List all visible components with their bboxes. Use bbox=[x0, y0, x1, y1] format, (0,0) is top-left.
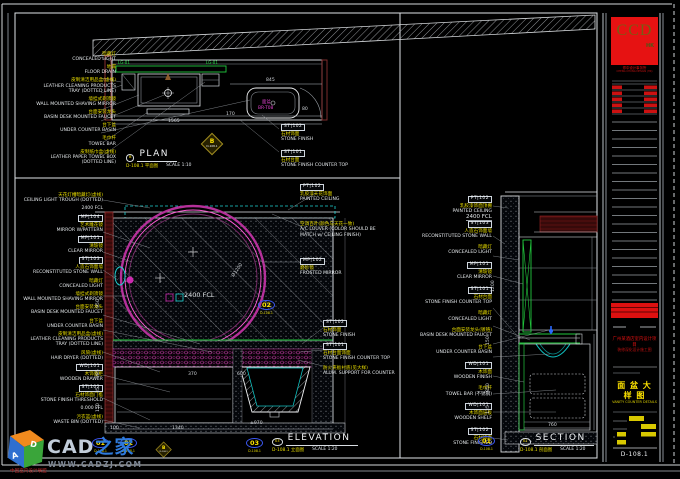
marker-ref: D-108.1 bbox=[480, 447, 493, 451]
label-item: ST|101 石材台面 STONE FINISH COUNTER TOP bbox=[281, 150, 391, 168]
label-item: 0.000 FFL bbox=[8, 406, 103, 411]
dim-80: 80 bbox=[302, 107, 308, 112]
view-title-text: ELEVATION bbox=[286, 434, 359, 446]
label-item: 皮制清洁用品盒(虚线) LEATHER CLEANING PRODUCTS TR… bbox=[8, 332, 103, 347]
material-code: PT|102 bbox=[300, 184, 324, 191]
material-code: MP|101 bbox=[78, 236, 103, 243]
label-item: 2400 FCL bbox=[8, 206, 103, 211]
elevation-title: 03 ELEVATION D-108.1 立面图 SCALE 1:20 bbox=[272, 434, 358, 453]
label-en: CLEAR MIRROR bbox=[68, 249, 103, 254]
dim-600: 600 bbox=[237, 372, 246, 377]
label-en: MIRROR W/PATTERN bbox=[57, 228, 103, 233]
label-item: ST|103 人造石饰面墙 RECONSTITUTED STONE WALL bbox=[8, 257, 103, 275]
label-en: CONCEALED LIGHT bbox=[448, 250, 492, 255]
section-fcl-label: 2400 FCL bbox=[466, 214, 492, 221]
section-title: 01 SECTION D-108.1 剖面图 SCALE 1:20 bbox=[520, 434, 594, 453]
material-code: ST|101 bbox=[468, 287, 492, 294]
watermark-brand-home: 之家 bbox=[94, 436, 134, 458]
label-en2: TRAY (DOTTED LINE) bbox=[69, 89, 116, 94]
label-item: MP|102 磨砂镜 FROSTED MIRROR bbox=[300, 258, 400, 276]
label-item: 暗藏灯 CONCEALED LIGHT bbox=[404, 245, 492, 255]
label-en: PAINTED CEILING bbox=[300, 197, 340, 202]
label-item: ST|101 石材台面 STONE FINISH COUNTER TOP bbox=[404, 287, 492, 305]
dim-1200: 1200 bbox=[491, 280, 496, 292]
label-item: 皮制清洁用品盒(虚线) LEATHER CLEANING PRODUCTS TR… bbox=[18, 78, 116, 93]
dim-845: 845 bbox=[266, 78, 275, 83]
label-en: BASIN DESK MOUNTED FAUCET bbox=[31, 310, 103, 315]
label-item: MP|101 清玻镜 CLEAR MIRROR bbox=[8, 236, 103, 254]
dim-100: 100 bbox=[110, 426, 119, 431]
project-line2: 装修深化设计施工图 bbox=[611, 348, 658, 353]
elevation-right-top-labels: PT|102 乳胶漆天花饰面 PAINTED CEILING 空调百叶(颜色与天… bbox=[300, 184, 400, 276]
material-code: ST|102 bbox=[281, 124, 305, 131]
label-en: CLEAR MIRROR bbox=[457, 275, 492, 280]
label-en: WOODEN SHELF bbox=[454, 416, 492, 421]
material-code: WD|101 bbox=[465, 362, 492, 369]
view-title-text: PLAN bbox=[137, 150, 177, 162]
detail-marker-03[interactable]: 03 D-108.1 bbox=[246, 438, 263, 453]
label-item: 空调百叶(颜色与天花一致) A/C LOUVER (COLOR SHOULD B… bbox=[300, 222, 400, 237]
label-en: UNDER COUNTER BASIN bbox=[47, 324, 103, 329]
company-name-en: CHENG CHUNG DESIGN (HK) bbox=[613, 70, 655, 73]
label-item: 墙挂式剃须镜 WALL MOUNTED SHAVING MIRROR bbox=[8, 292, 103, 302]
section-left-labels: PT|102 乳胶漆饰面顶棚 PAINTED CEILING ST|103 人造… bbox=[404, 196, 492, 446]
label-item: 地漏 FLOOR DRAIN bbox=[18, 65, 116, 75]
label-item: 台面安装龙头 BASIN DESK MOUNTED FAUCET bbox=[18, 110, 116, 120]
dim-135: 135 bbox=[486, 405, 491, 414]
label-en: UNDER COUNTER BASIN bbox=[436, 350, 492, 355]
label-item: 暗藏灯 CONCEALED LIGHT bbox=[18, 52, 116, 62]
label-en: STONE FINISH COUNTER TOP bbox=[425, 300, 492, 305]
label-en: STONE FINISH COUNTER TOP bbox=[281, 163, 348, 168]
view-ref: D-108.1 剖面图 bbox=[520, 447, 552, 453]
label-item: ST|101 石材台面饰面 STONE FINISH COUNTER TOP bbox=[323, 343, 403, 361]
marker-ref: D-108.1 bbox=[248, 449, 261, 453]
label-item: PT|102 乳胶漆饰面顶棚 PAINTED CEILING bbox=[404, 196, 492, 214]
watermark-tagline: 中国室内设计联盟 bbox=[10, 469, 47, 474]
view-ref: D-108.1 平面图 bbox=[126, 163, 158, 169]
material-code: MP|102 bbox=[300, 258, 325, 265]
section-title-sub: D-108.1 剖面图 SCALE 1:20 bbox=[520, 447, 594, 453]
detail-marker-b[interactable]: B D-108.1 bbox=[200, 132, 224, 156]
label-item: ST|102 石材饰面 STONE FINISH bbox=[281, 124, 391, 142]
label-en: STONE FINISH COUNTER TOP bbox=[323, 356, 390, 361]
watermark-brand-cad: CAD bbox=[47, 436, 94, 458]
detail-ref: D-108.1 bbox=[160, 451, 168, 453]
label-en: WALL MOUNTED SHAVING MIRROR bbox=[23, 297, 103, 302]
material-code: ST|102 bbox=[468, 428, 492, 435]
title-marker[interactable]: 01 bbox=[520, 438, 531, 446]
plan-title-row: B PLAN bbox=[126, 150, 191, 162]
detail-ref: D-108.1 bbox=[206, 145, 217, 148]
view-scale: SCALE 1:20 bbox=[312, 447, 337, 453]
label-item: ST|102 石材饰面 STONE FINISH bbox=[323, 320, 403, 338]
watermark-brand[interactable]: CAD之家 bbox=[47, 437, 134, 458]
material-code: ST|101 bbox=[281, 150, 305, 157]
label-en: STONE FINISH THRESHOLD bbox=[41, 398, 103, 403]
label-en2: (DOTTED LINE) bbox=[82, 160, 116, 165]
dim-760: 760 bbox=[548, 423, 557, 428]
label-item: 台面安装龙头 BASIN DESK MOUNTED FAUCET bbox=[8, 305, 103, 315]
dim-850: 850 bbox=[486, 383, 491, 392]
label-en: FLOOR DRAIN bbox=[85, 70, 116, 75]
detail-marker-b-elevation[interactable]: B D-108.1 bbox=[155, 441, 172, 458]
label-en: STONE FINISH bbox=[323, 333, 355, 338]
dim-150: 150 bbox=[486, 336, 491, 345]
cad-sheet: 暗藏灯 CONCEALED LIGHT 地漏 FLOOR DRAIN 皮制清洁用… bbox=[0, 0, 680, 479]
detail-marker-01-section[interactable]: 01 D-108.1 bbox=[478, 436, 495, 451]
plan-title: B PLAN D-108.1 平面图 SCALE 1:10 bbox=[126, 150, 191, 169]
marker-ref: D-108.1 bbox=[260, 311, 273, 315]
material-code: PT|102 bbox=[468, 196, 492, 203]
label-en: 2400 FCL bbox=[81, 206, 103, 211]
label-en2: TRAY (DOTTED LINE) bbox=[56, 342, 103, 347]
label-item: ST|102 石材饰面门槛 STONE FINISH THRESHOLD bbox=[8, 385, 103, 403]
elevation-title-sub: D-108.1 立面图 SCALE 1:20 bbox=[272, 447, 358, 453]
view-ref: D-108.1 立面图 bbox=[272, 447, 304, 453]
dim-150: 150 bbox=[96, 403, 101, 412]
label-en: CONCEALED LIGHT bbox=[448, 317, 492, 322]
label-item: WD|101 木饰面柜 WOODEN DRAWER bbox=[8, 364, 103, 382]
label-item: 台下盆 UNDER COUNTER BASIN bbox=[8, 319, 103, 329]
label-item: 风筒(虚线) HAIR DRYER (DOTTED) bbox=[8, 351, 103, 361]
label-item: MP|101 清玻镜 CLEAR MIRROR bbox=[404, 262, 492, 280]
title-marker[interactable]: B bbox=[126, 154, 134, 162]
material-code: ST|103 bbox=[79, 257, 103, 264]
plan-right-labels: ST|102 石材饰面 STONE FINISH ST|101 石材台面 STO… bbox=[281, 124, 391, 168]
sheet-title-block: 面 盆 大 样 图 VANITY COUNTER DETAILS bbox=[611, 381, 658, 405]
mirror-fcl-label: 2400 FCL bbox=[184, 292, 215, 299]
label-item: PT|102 乳胶漆天花饰面 PAINTED CEILING bbox=[300, 184, 400, 202]
label-en: CEILING LIGHT TROUGH (DOTTED) bbox=[24, 198, 103, 203]
label-en: WALL MOUNTED SHAVING MIRROR bbox=[36, 102, 116, 107]
label-en: WOODEN FINISH bbox=[454, 375, 492, 380]
label-item: 毛巾杆 TOWEL BAR (不锈钢) bbox=[404, 386, 492, 396]
label-en: FROSTED MIRROR bbox=[300, 271, 342, 276]
dim-35: 35 bbox=[96, 387, 101, 393]
watermark-cube-letter-d: D bbox=[29, 440, 37, 450]
material-code: MP|101 bbox=[467, 262, 492, 269]
label-item: 污衣篮(虚线) WASTE BIN (DOTTED) bbox=[8, 415, 103, 425]
label-en: BASIN DESK MOUNTED FAUCET bbox=[420, 333, 492, 338]
label-item: 墙挂式剃须镜 WALL MOUNTED SHAVING MIRROR bbox=[18, 97, 116, 107]
material-code: ST|103 bbox=[468, 221, 492, 228]
label-en: ALUM. SUPPORT FOR COUNTER bbox=[323, 371, 395, 376]
label-en: CONCEALED LIGHT bbox=[72, 57, 116, 62]
label-en: TOWEL BAR (不锈钢) bbox=[446, 392, 492, 397]
fixture-code: BR-T08 bbox=[258, 107, 273, 112]
dim-970: ±970 bbox=[250, 421, 263, 426]
finish-tag: LG-01 bbox=[206, 61, 218, 65]
label-en: BASIN DESK MOUNTED FAUCET bbox=[44, 115, 116, 120]
plan-left-labels: 暗藏灯 CONCEALED LIGHT 地漏 FLOOR DRAIN 皮制清洁用… bbox=[18, 52, 116, 165]
project-block: 广州某酒店室内设计项目 装修深化设计施工图 bbox=[611, 337, 658, 353]
title-marker[interactable]: 03 bbox=[272, 438, 283, 446]
sheet-title-en: VANITY COUNTER DETAILS bbox=[611, 400, 658, 405]
marker-number: 02 bbox=[258, 300, 275, 310]
label-en: RECONSTITUTED STONE WALL bbox=[33, 270, 103, 275]
material-code: ST|101 bbox=[323, 343, 347, 350]
finish-tag: LG-01 bbox=[118, 61, 130, 65]
dim-1565: 1565 bbox=[168, 119, 180, 124]
material-code: ST|102 bbox=[323, 320, 347, 327]
material-code: MP|104 bbox=[78, 215, 103, 222]
label-item: 暗藏灯 CONCEALED LIGHT bbox=[8, 279, 103, 289]
elevation-left-labels: 天花灯槽暗藏灯(虚线) CEILING LIGHT TROUGH (DOTTED… bbox=[8, 193, 103, 425]
watermark-url[interactable]: WWW.CADZJ.COM bbox=[48, 461, 143, 469]
ccd-logo-sub: HK bbox=[646, 43, 654, 49]
label-item: 暗藏灯 CONCEALED LIGHT bbox=[404, 311, 492, 321]
label-en: TOWEL BAR bbox=[89, 142, 116, 147]
sheet-title-cn: 面 盆 大 样 图 bbox=[611, 381, 658, 400]
company-block: 郑中设计事务所 CHENG CHUNG DESIGN (HK) bbox=[611, 66, 658, 73]
label-item: WD|101 木饰面 WOODEN FINISH bbox=[404, 362, 492, 380]
dim-285: 285 bbox=[96, 369, 101, 378]
label-item: 台下盆 UNDER COUNTER BASIN bbox=[404, 345, 492, 355]
label-en: RECONSTITUTED STONE WALL bbox=[422, 234, 492, 239]
ccd-logo-box: CCD HK bbox=[611, 17, 658, 65]
label-en: UNDER COUNTER BASIN bbox=[60, 128, 116, 133]
label-en: HAIR DRYER (DOTTED) bbox=[51, 356, 103, 361]
label-en: WASTE BIN (DOTTED) bbox=[53, 420, 103, 425]
label-en: CONCEALED LIGHT bbox=[59, 284, 103, 289]
elevation-right-mid-labels: ST|102 石材饰面 STONE FINISH ST|101 石材台面饰面 S… bbox=[323, 320, 403, 376]
elevation-title-row: 03 ELEVATION bbox=[272, 434, 358, 446]
label-item: 皮制纸巾盒(虚线) LEATHER PAPER TOWEL BOX (DOTTE… bbox=[18, 150, 116, 165]
detail-marker-02-mirror[interactable]: 02 D-108.1 bbox=[258, 300, 275, 315]
ccd-logo-text: CCD bbox=[617, 23, 653, 39]
marker-number: 03 bbox=[246, 438, 263, 448]
marker-number: 01 bbox=[478, 436, 495, 446]
label-item: 防火夹板衬底(见大样) ALUM. SUPPORT FOR COUNTER bbox=[323, 366, 403, 376]
plan-title-sub: D-108.1 平面图 SCALE 1:10 bbox=[126, 163, 191, 169]
view-scale: SCALE 1:10 bbox=[166, 163, 191, 169]
sheet-number: D-108.1 bbox=[611, 451, 658, 458]
section-title-row: 01 SECTION bbox=[520, 434, 594, 446]
dim-170: 170 bbox=[226, 112, 235, 117]
label-item: 天花灯槽暗藏灯(虚线) CEILING LIGHT TROUGH (DOTTED… bbox=[8, 193, 103, 203]
view-scale: SCALE 1:20 bbox=[560, 447, 585, 453]
label-en: STONE FINISH bbox=[281, 137, 313, 142]
label-item: ST|103 人造石饰面墙 RECONSTITUTED STONE WALL bbox=[404, 221, 492, 239]
label-item: 台下盆 UNDER COUNTER BASIN bbox=[18, 123, 116, 133]
dim-950: 950 bbox=[96, 299, 101, 308]
label-item: MP|104 艺术雕花镜 MIRROR W/PATTERN bbox=[8, 215, 103, 233]
label-item: WD|101 木饰面层板 WOODEN SHELF bbox=[404, 403, 492, 421]
label-item: 毛巾杆 TOWEL BAR bbox=[18, 136, 116, 146]
dim-1340: 1340 bbox=[172, 426, 184, 431]
dim-370: 370 bbox=[188, 372, 197, 377]
view-title-text: SECTION bbox=[534, 434, 594, 446]
label-en2: MATCH w/ CEILING FINISH) bbox=[300, 233, 361, 238]
label-item: 台面安装龙头(镀铬) BASIN DESK MOUNTED FAUCET bbox=[404, 328, 492, 338]
